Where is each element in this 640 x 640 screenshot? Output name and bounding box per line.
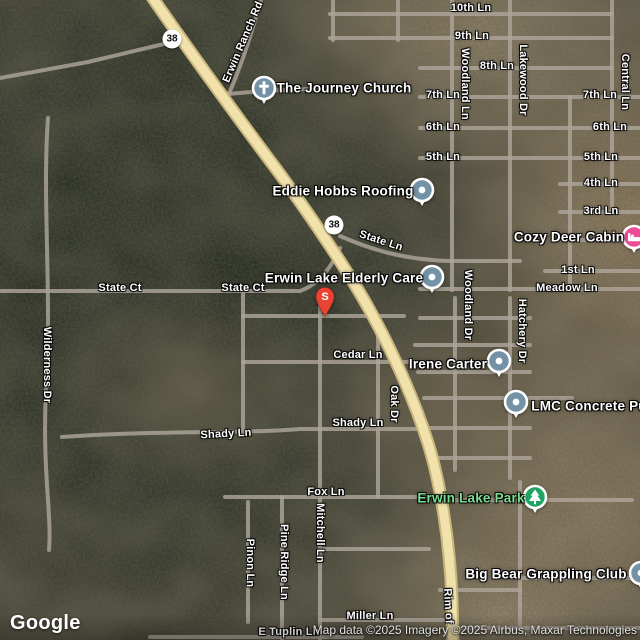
dot-icon [628,560,640,590]
poi-marker-big-bear-grappling-club[interactable] [628,560,640,590]
poi-marker-lmc-concrete[interactable] [503,389,529,419]
cross-icon [251,75,277,105]
saved-place-pin[interactable]: S [313,286,337,318]
poi-layer: The Journey ChurchEddie Hobbs RoofingErw… [0,0,640,640]
poi-marker-the-journey-church[interactable] [251,75,277,105]
poi-marker-irene-carter[interactable] [486,348,512,378]
pin-letter: S [313,291,337,303]
poi-label-the-journey-church[interactable]: The Journey Church [277,81,412,96]
poi-label-big-bear-grappling-club[interactable]: Big Bear Grappling Club [465,567,626,582]
poi-label-erwin-lake-park[interactable]: Erwin Lake Park [417,491,524,506]
map-canvas[interactable]: 10th Ln9th Ln8th Ln7th Ln7th Ln6th Ln6th… [0,0,640,640]
google-logo: Google [10,612,81,635]
poi-label-irene-carter[interactable]: Irene Carter [409,357,487,372]
poi-label-cozy-deer-cabin[interactable]: Cozy Deer Cabin [514,230,624,245]
map-attribution: Map data ©2025 Imagery ©2025 Airbus, Max… [313,623,637,637]
poi-label-lmc-concrete[interactable]: LMC Concrete Pu [531,399,640,414]
tree-icon [522,484,548,514]
poi-label-eddie-hobbs-roofing[interactable]: Eddie Hobbs Roofing [272,184,413,199]
poi-marker-erwin-lake-park[interactable] [522,484,548,514]
dot-icon [486,348,512,378]
dot-icon [503,389,529,419]
poi-label-erwin-lake-elderly-care[interactable]: Erwin Lake Elderly Care [265,271,423,286]
